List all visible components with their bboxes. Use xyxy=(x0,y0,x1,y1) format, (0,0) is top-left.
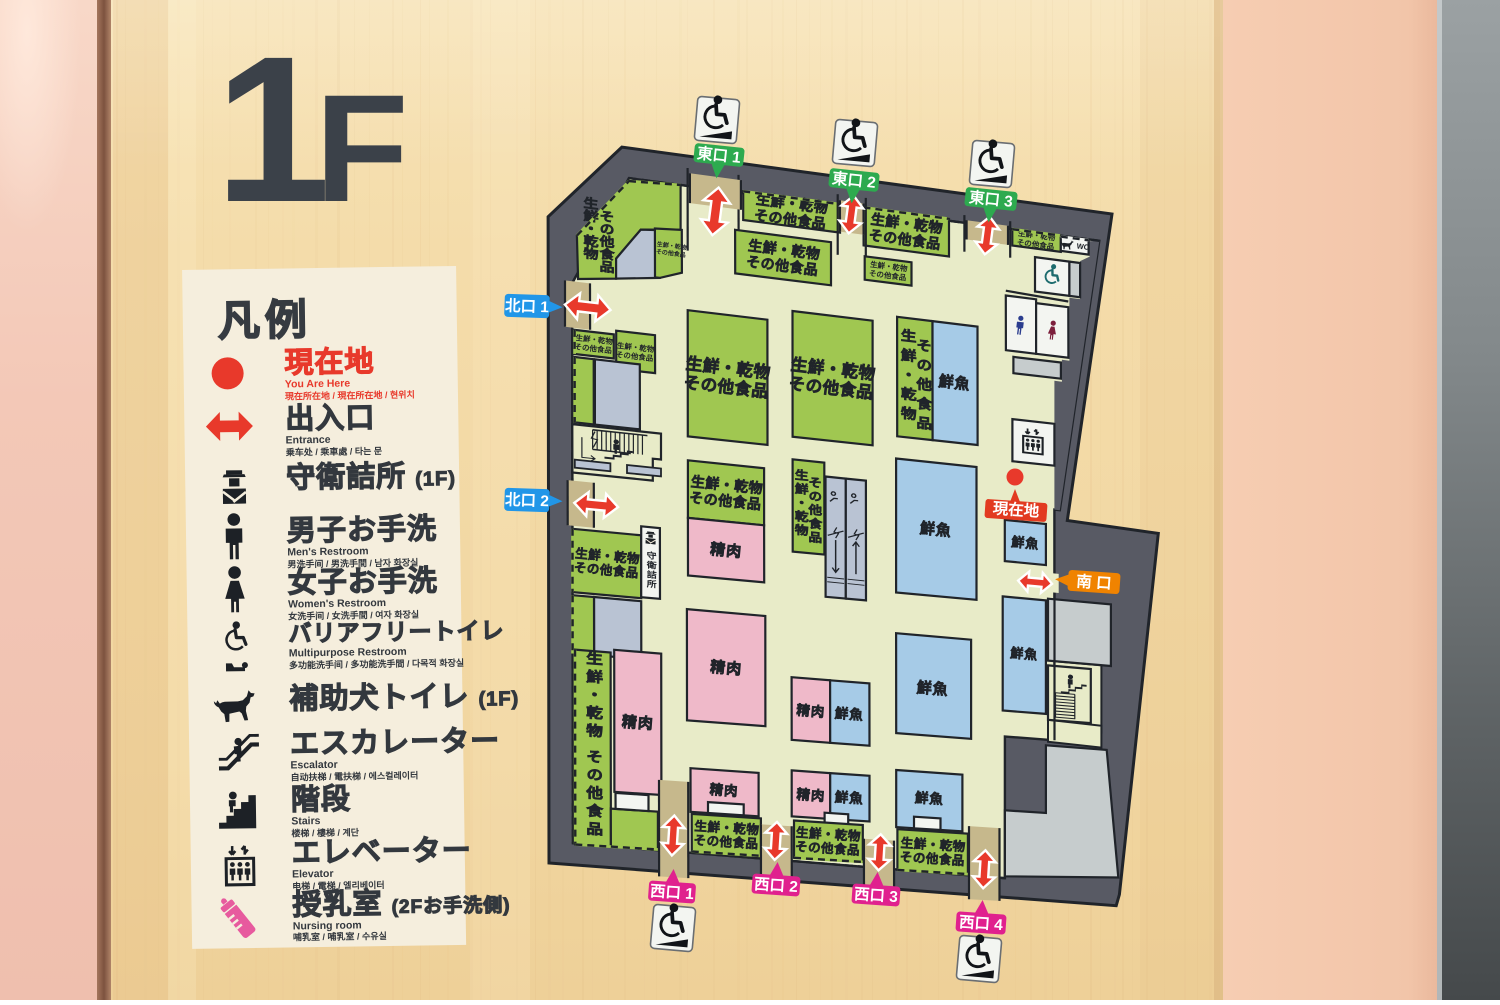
svg-text:F: F xyxy=(315,63,408,234)
svg-text:北口 1: 北口 1 xyxy=(505,297,550,317)
svg-text:エレベーター: エレベーター xyxy=(292,834,472,870)
svg-text:Elevator: Elevator xyxy=(292,868,334,881)
svg-text:Stairs: Stairs xyxy=(291,815,321,827)
svg-text:現在地: 現在地 xyxy=(284,345,374,379)
svg-text:出入口: 出入口 xyxy=(285,401,375,435)
svg-text:哺乳室 / 哺乳室 / 수유실: 哺乳室 / 哺乳室 / 수유실 xyxy=(293,930,387,942)
svg-text:鮮魚: 鮮魚 xyxy=(919,519,953,540)
svg-text:鮮魚: 鮮魚 xyxy=(1011,534,1040,552)
svg-text:鮮魚: 鮮魚 xyxy=(914,789,944,807)
svg-text:現在所在地 / 現在所在地 / 현위치: 現在所在地 / 現在所在地 / 현위치 xyxy=(285,389,415,402)
svg-text:凡例: 凡例 xyxy=(218,296,313,344)
svg-text:Multipurpose Restroom: Multipurpose Restroom xyxy=(289,646,407,660)
svg-text:生鮮・乾物その他食品: 生鮮・乾物その他食品 xyxy=(693,818,760,851)
svg-text:精肉: 精肉 xyxy=(709,781,739,799)
svg-text:北口 2: 北口 2 xyxy=(505,491,550,511)
svg-text:1: 1 xyxy=(215,14,331,246)
svg-text:Nursing room: Nursing room xyxy=(293,919,362,932)
svg-text:西口 3: 西口 3 xyxy=(853,885,898,906)
svg-text:鮮魚: 鮮魚 xyxy=(1010,645,1039,662)
svg-text:自动扶梯 / 電扶梯 / 에스컬레이터: 自动扶梯 / 電扶梯 / 에스컬레이터 xyxy=(291,770,419,783)
svg-text:You Are Here: You Are Here xyxy=(285,378,351,391)
svg-text:Men's Restroom: Men's Restroom xyxy=(287,545,368,558)
svg-text:西口 1: 西口 1 xyxy=(649,882,694,903)
svg-text:Women's Restroom: Women's Restroom xyxy=(288,597,386,610)
svg-text:鮮魚: 鮮魚 xyxy=(834,705,864,723)
svg-text:精肉: 精肉 xyxy=(621,713,654,733)
svg-text:その他食品: その他食品 xyxy=(914,337,932,436)
svg-text:南 口: 南 口 xyxy=(1076,571,1113,592)
svg-text:乗车处 / 乘車處 / 타는 문: 乗车处 / 乘車處 / 타는 문 xyxy=(286,445,383,457)
svg-text:その他食品: その他食品 xyxy=(806,476,822,546)
svg-text:男子お手洗: 男子お手洗 xyxy=(287,512,437,547)
svg-text:Escalator: Escalator xyxy=(290,759,337,772)
svg-text:鮮魚: 鮮魚 xyxy=(834,789,864,807)
svg-text:鮮魚: 鮮魚 xyxy=(916,678,949,699)
svg-text:生鮮・乾物 その他食品: 生鮮・乾物 その他食品 xyxy=(584,649,604,840)
svg-text:生鮮・乾物その他食品: 生鮮・乾物その他食品 xyxy=(899,835,966,868)
svg-text:精肉: 精肉 xyxy=(710,658,743,679)
svg-text:バリアフリートイレ: バリアフリートイレ xyxy=(288,617,504,646)
svg-text:守衛詰所: 守衛詰所 xyxy=(645,550,658,590)
svg-text:女子お手洗: 女子お手洗 xyxy=(287,563,438,599)
svg-text:生鮮・乾物その他食品: 生鮮・乾物その他食品 xyxy=(573,546,640,581)
svg-text:精肉: 精肉 xyxy=(796,702,826,720)
svg-text:エスカレーター: エスカレーター xyxy=(290,724,500,760)
svg-text:その他食品: その他食品 xyxy=(597,209,615,275)
svg-text:Entrance: Entrance xyxy=(286,434,331,447)
svg-text:精肉: 精肉 xyxy=(796,786,826,804)
svg-text:鮮魚: 鮮魚 xyxy=(938,372,972,394)
svg-text:西口 4: 西口 4 xyxy=(958,913,1003,934)
svg-text:西口 2: 西口 2 xyxy=(753,875,798,896)
svg-text:生鮮・乾物その他食品: 生鮮・乾物その他食品 xyxy=(795,825,862,858)
svg-text:階段: 階段 xyxy=(291,782,352,817)
svg-text:精肉: 精肉 xyxy=(709,540,743,561)
svg-text:WC: WC xyxy=(1076,241,1090,252)
